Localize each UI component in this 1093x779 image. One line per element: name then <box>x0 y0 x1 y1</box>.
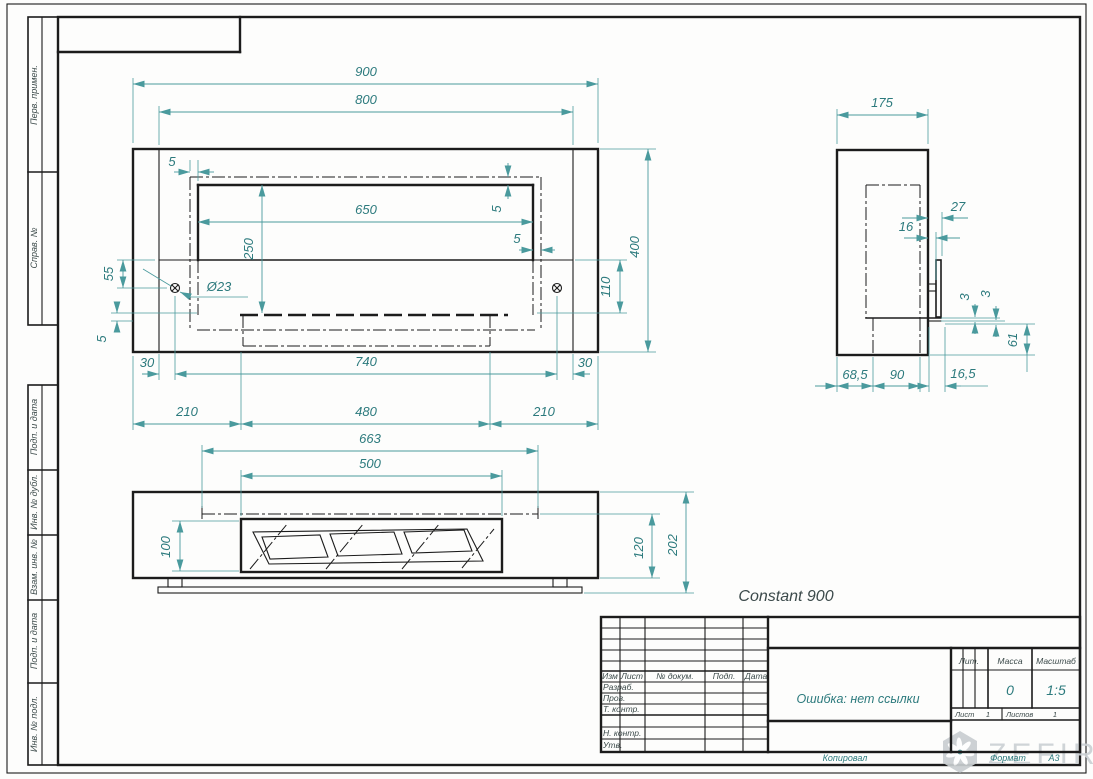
row-razrab: Разраб. <box>603 682 634 692</box>
copied-by-label: Копировал <box>823 753 868 763</box>
mass-value: 0 <box>1006 682 1014 698</box>
top-body <box>133 492 598 578</box>
mount-hole-right <box>553 284 562 293</box>
margin-label-vzam-inv: Взам. инв. № <box>29 539 39 595</box>
drawing-sheet: Перв. примен. Справ. № Подп. и дата Инв.… <box>0 0 1093 779</box>
dim-5-top-left: 5 <box>168 154 176 169</box>
margin-label-inv-dubl: Инв. № дубл. <box>29 474 39 529</box>
dim-3-b: 3 <box>978 290 993 298</box>
dim-800: 800 <box>355 92 377 107</box>
dim-100: 100 <box>158 535 173 557</box>
sheet-label: Лист <box>954 710 974 719</box>
dim-16: 16 <box>899 219 914 234</box>
dim-250: 250 <box>241 237 256 260</box>
front-view-dimensions: 900 800 650 250 5 5 5 55 5 Ø23 <box>94 64 656 430</box>
dim-5-bottom-left: 5 <box>94 335 109 343</box>
sheet-value: 1 <box>986 710 990 719</box>
dim-5-right-vertical: 5 <box>489 205 504 213</box>
dim-30-left: 30 <box>140 355 155 370</box>
dim-740: 740 <box>355 354 377 369</box>
dim-480: 480 <box>355 404 377 419</box>
row-prov: Пров. <box>603 693 625 703</box>
margin-stamps: Перв. примен. Справ. № Подп. и дата Инв.… <box>28 17 58 765</box>
dim-110: 110 <box>598 276 613 297</box>
top-view-dimensions: 663 500 100 120 202 <box>158 431 694 593</box>
dim-210-left: 210 <box>175 404 198 419</box>
margin-label-podp-data-2: Подп. и дата <box>29 613 39 669</box>
col-no-dokum: № докум. <box>656 671 693 681</box>
scale-value: 1:5 <box>1046 682 1066 698</box>
dim-175: 175 <box>871 95 893 110</box>
dim-90: 90 <box>890 367 905 382</box>
dim-27: 27 <box>950 199 966 214</box>
col-podp: Подп. <box>713 671 736 681</box>
dim-5-right-horizontal: 5 <box>513 231 521 246</box>
dim-400: 400 <box>627 235 642 257</box>
sheets-label: Листов <box>1005 710 1033 719</box>
top-view <box>133 492 598 593</box>
lit-label: Лит. <box>958 656 979 666</box>
sheet-frame <box>7 4 1086 773</box>
margin-label-sprav-no: Справ. № <box>29 227 39 268</box>
row-t-kontr: Т. контр. <box>603 704 640 714</box>
product-title: Constant 900 <box>738 588 833 605</box>
side-view-dimensions: 175 27 16 3 3 61 68,5 90 16,5 <box>815 95 1035 392</box>
foot-left <box>168 578 182 587</box>
col-list: Лист <box>620 671 643 681</box>
front-outer-panel <box>133 149 598 352</box>
dim-68-5: 68,5 <box>842 367 868 382</box>
dim-650: 650 <box>355 202 377 217</box>
title-block: Изм Лист № докум. Подп. Дата Разраб. Про… <box>601 617 1080 752</box>
mount-hole-left <box>171 284 180 293</box>
row-n-kontr: Н. контр. <box>603 728 641 738</box>
row-utv: Утв. <box>602 740 622 750</box>
side-body <box>837 150 928 355</box>
foot-right <box>553 578 567 587</box>
dim-hole-diameter: Ø23 <box>206 279 232 294</box>
sheets-value: 1 <box>1053 710 1057 719</box>
margin-label-perv-primen: Перв. примен. <box>29 65 39 125</box>
side-bracket-tab <box>928 284 936 291</box>
doc-name: Ошибка: нет ссылки <box>796 692 919 706</box>
format-value: A3 <box>1047 753 1059 763</box>
margin-label-podp-data-1: Подп. и дата <box>29 399 39 455</box>
margin-label-inv-podl: Инв. № подл. <box>29 696 39 752</box>
dim-55: 55 <box>101 266 116 281</box>
drawing-canvas: Перв. примен. Справ. № Подп. и дата Инв.… <box>0 0 1093 779</box>
dim-30-right: 30 <box>578 355 593 370</box>
col-izm: Изм <box>602 671 618 681</box>
front-view <box>133 149 598 352</box>
dim-500: 500 <box>359 456 381 471</box>
page-border <box>7 4 1086 773</box>
format-label: Формат <box>990 753 1026 763</box>
mass-label: Масса <box>997 656 1022 666</box>
dim-120: 120 <box>631 536 646 558</box>
side-bracket-bar <box>936 260 941 317</box>
base-plate <box>158 587 582 593</box>
dim-210-right: 210 <box>532 404 555 419</box>
dim-3-a: 3 <box>957 293 972 301</box>
dim-202: 202 <box>665 533 680 556</box>
footer-strip: Копировал Формат A3 <box>823 753 1060 763</box>
side-view <box>837 150 941 355</box>
scale-label: Масштаб <box>1036 656 1077 666</box>
col-data: Дата <box>744 671 768 681</box>
inner-frame <box>58 17 1080 765</box>
dim-663: 663 <box>359 431 381 446</box>
dim-61: 61 <box>1005 333 1020 347</box>
dim-16-5: 16,5 <box>950 366 976 381</box>
dim-900: 900 <box>355 64 377 79</box>
